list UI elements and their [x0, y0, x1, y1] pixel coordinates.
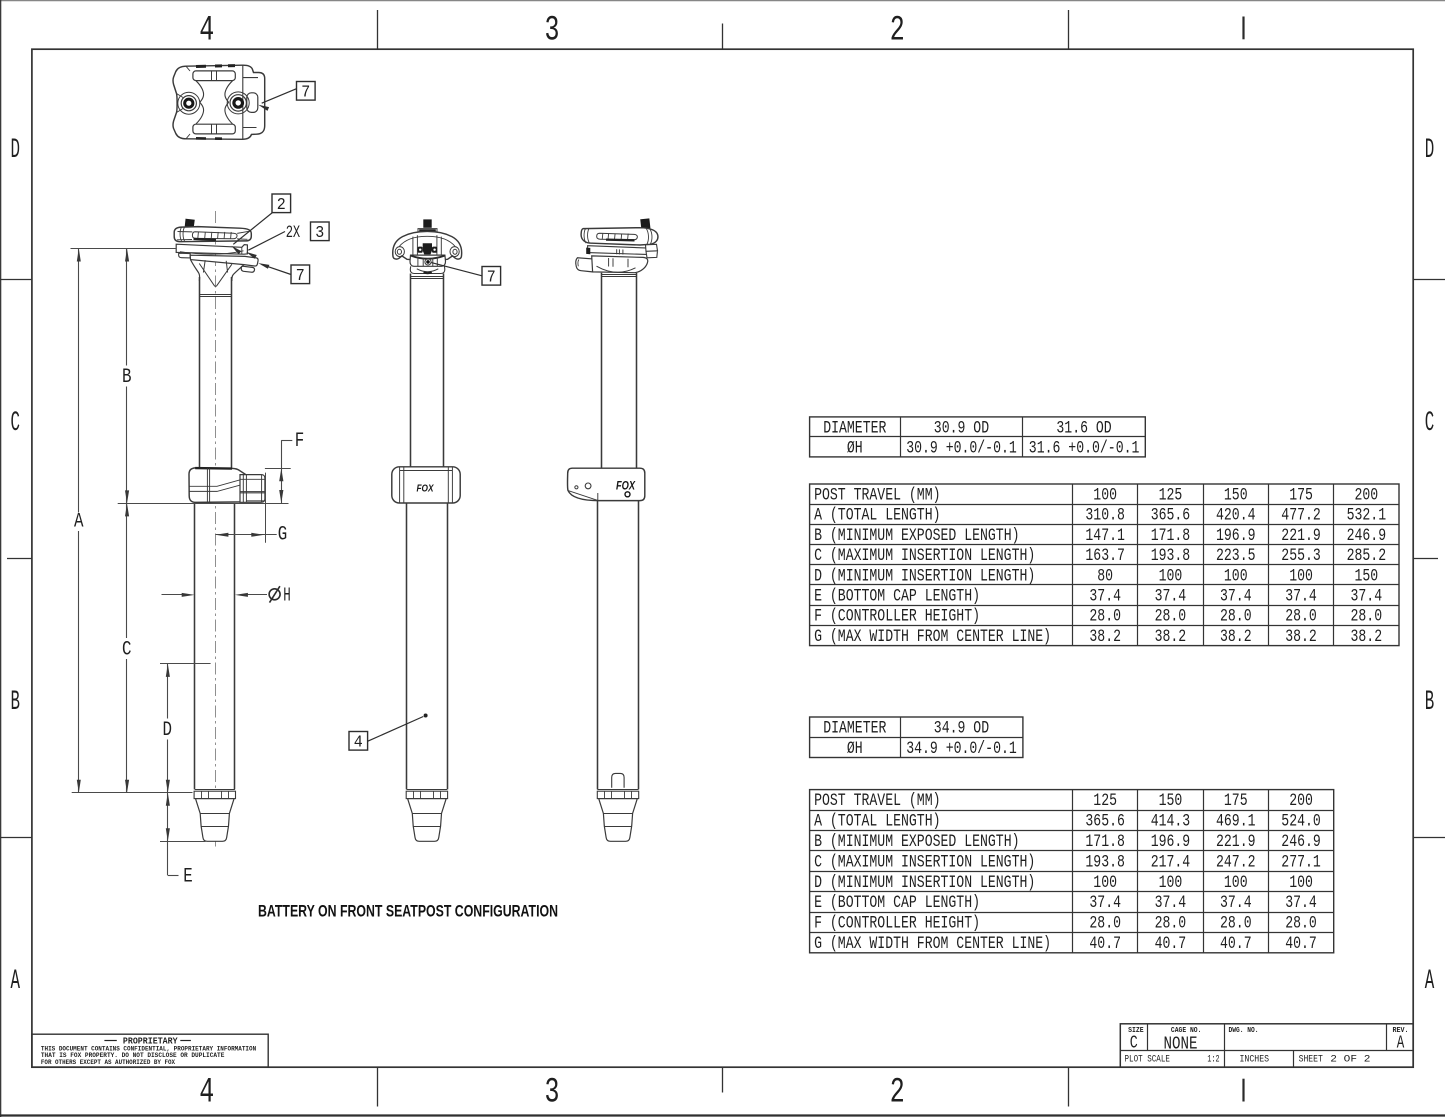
svg-text:B: B [10, 687, 20, 718]
svg-text:POST TRAVEL (MM): POST TRAVEL (MM) [814, 791, 940, 811]
svg-text:3: 3 [315, 224, 324, 243]
svg-text:D: D [10, 135, 20, 166]
svg-text:37.4: 37.4 [1220, 587, 1252, 607]
svg-text:246.9: 246.9 [1347, 526, 1387, 546]
svg-text:38.2: 38.2 [1220, 627, 1252, 647]
svg-text:2: 2 [890, 10, 905, 50]
svg-text:37.4: 37.4 [1351, 587, 1383, 607]
svg-text:34.9 OD: 34.9 OD [934, 719, 989, 739]
svg-text:A: A [1397, 1033, 1405, 1053]
svg-text:4: 4 [199, 1073, 214, 1113]
svg-text:80: 80 [1097, 566, 1113, 586]
svg-text:A: A [74, 511, 84, 534]
svg-text:524.0: 524.0 [1281, 812, 1321, 832]
svg-text:DIAMETER: DIAMETER [823, 418, 887, 438]
svg-text:150: 150 [1224, 486, 1248, 506]
svg-text:221.9: 221.9 [1281, 526, 1321, 546]
svg-text:37.4: 37.4 [1220, 893, 1252, 913]
svg-text:DWG. NO.: DWG. NO. [1229, 1027, 1259, 1035]
svg-text:277.1: 277.1 [1281, 852, 1321, 872]
svg-text:F (CONTROLLER HEIGHT): F (CONTROLLER HEIGHT) [814, 914, 980, 934]
svg-text:E (BOTTOM CAP LENGTH): E (BOTTOM CAP LENGTH) [814, 893, 980, 913]
svg-text:163.7: 163.7 [1085, 546, 1125, 566]
svg-text:37.4: 37.4 [1155, 893, 1187, 913]
svg-text:G (MAX WIDTH FROM CENTER LINE): G (MAX WIDTH FROM CENTER LINE) [814, 934, 1051, 954]
svg-text:193.8: 193.8 [1151, 546, 1191, 566]
svg-text:A: A [10, 966, 20, 997]
svg-text:38.2: 38.2 [1351, 627, 1383, 647]
svg-text:1:2: 1:2 [1207, 1054, 1219, 1065]
svg-text:FOX: FOX [417, 483, 435, 495]
svg-text:38.2: 38.2 [1285, 627, 1317, 647]
svg-text:C (MAXIMUM INSERTION LENGTH): C (MAXIMUM INSERTION LENGTH) [814, 546, 1035, 566]
svg-text:31.6 OD: 31.6 OD [1056, 418, 1111, 438]
svg-text:28.0: 28.0 [1155, 914, 1187, 934]
svg-text:30.9 +0.0/-0.1: 30.9 +0.0/-0.1 [906, 438, 1017, 458]
svg-text:147.1: 147.1 [1085, 526, 1125, 546]
svg-text:C: C [10, 408, 20, 439]
svg-text:477.2: 477.2 [1281, 506, 1321, 526]
svg-text:7: 7 [301, 83, 310, 102]
svg-text:A: A [1425, 966, 1435, 997]
svg-text:28.0: 28.0 [1155, 607, 1187, 627]
svg-text:7: 7 [296, 267, 305, 286]
svg-text:D (MINIMUM INSERTION LENGTH): D (MINIMUM INSERTION LENGTH) [814, 873, 1035, 893]
svg-text:365.6: 365.6 [1085, 812, 1125, 832]
svg-text:E (BOTTOM CAP LENGTH): E (BOTTOM CAP LENGTH) [814, 587, 980, 607]
svg-text:37.4: 37.4 [1089, 587, 1121, 607]
svg-text:4: 4 [199, 10, 214, 50]
svg-text:200: 200 [1289, 791, 1313, 811]
svg-text:40.7: 40.7 [1285, 934, 1317, 954]
svg-text:C (MAXIMUM INSERTION LENGTH): C (MAXIMUM INSERTION LENGTH) [814, 852, 1035, 872]
svg-text:255.3: 255.3 [1281, 546, 1321, 566]
svg-text:C: C [122, 638, 132, 661]
svg-text:ØH: ØH [847, 438, 863, 458]
svg-text:B: B [122, 366, 132, 389]
svg-text:40.7: 40.7 [1220, 934, 1252, 954]
svg-text:247.2: 247.2 [1216, 852, 1256, 872]
svg-text:150: 150 [1159, 791, 1183, 811]
svg-text:4: 4 [354, 733, 363, 752]
svg-text:INCHES: INCHES [1240, 1054, 1270, 1065]
svg-text:196.9: 196.9 [1151, 832, 1191, 852]
svg-text:171.8: 171.8 [1151, 526, 1191, 546]
svg-text:G: G [278, 524, 288, 547]
svg-text:3: 3 [545, 1073, 560, 1113]
svg-text:469.1: 469.1 [1216, 812, 1256, 832]
svg-text:310.8: 310.8 [1085, 506, 1125, 526]
svg-text:171.8: 171.8 [1085, 832, 1125, 852]
svg-text:34.9 +0.0/-0.1: 34.9 +0.0/-0.1 [906, 739, 1017, 759]
svg-text:28.0: 28.0 [1351, 607, 1383, 627]
svg-text:37.4: 37.4 [1285, 587, 1317, 607]
svg-text:D: D [1425, 135, 1435, 166]
svg-text:223.5: 223.5 [1216, 546, 1256, 566]
svg-text:BATTERY ON FRONT SEATPOST CONF: BATTERY ON FRONT SEATPOST CONFIGURATION [258, 902, 558, 921]
svg-text:FOR OTHERS EXCEPT AS AUTHORIZE: FOR OTHERS EXCEPT AS AUTHORIZED BY FOX [41, 1059, 175, 1066]
svg-text:365.6: 365.6 [1151, 506, 1191, 526]
svg-text:246.9: 246.9 [1281, 832, 1321, 852]
svg-text:SHEET: SHEET [1299, 1054, 1323, 1065]
svg-text:7: 7 [487, 268, 496, 287]
svg-text:31.6 +0.0/-0.1: 31.6 +0.0/-0.1 [1029, 438, 1140, 458]
svg-text:150: 150 [1355, 566, 1379, 586]
svg-text:100: 100 [1289, 873, 1313, 893]
svg-text:175: 175 [1289, 486, 1313, 506]
svg-text:200: 200 [1355, 486, 1379, 506]
svg-text:100: 100 [1159, 566, 1183, 586]
svg-text:100: 100 [1224, 566, 1248, 586]
svg-text:NONE: NONE [1164, 1035, 1198, 1055]
svg-text:H: H [283, 585, 291, 607]
svg-text:100: 100 [1093, 873, 1117, 893]
svg-text:3: 3 [545, 10, 560, 50]
svg-text:B: B [1425, 687, 1435, 718]
svg-text:175: 175 [1224, 791, 1248, 811]
svg-text:E: E [183, 865, 193, 888]
svg-text:F: F [295, 430, 305, 453]
svg-text:2: 2 [890, 1073, 905, 1113]
svg-text:37.4: 37.4 [1155, 587, 1187, 607]
svg-text:28.0: 28.0 [1220, 914, 1252, 934]
svg-text:100: 100 [1224, 873, 1248, 893]
svg-text:2: 2 [277, 196, 286, 215]
svg-text:196.9: 196.9 [1216, 526, 1256, 546]
svg-text:A (TOTAL LENGTH): A (TOTAL LENGTH) [814, 812, 940, 832]
svg-text:30.9 OD: 30.9 OD [934, 418, 989, 438]
svg-text:28.0: 28.0 [1089, 914, 1121, 934]
svg-text:28.0: 28.0 [1089, 607, 1121, 627]
svg-text:D: D [162, 719, 172, 742]
svg-text:FOX: FOX [616, 481, 636, 493]
svg-text:B (MINIMUM EXPOSED LENGTH): B (MINIMUM EXPOSED LENGTH) [814, 526, 1019, 546]
svg-text:2X: 2X [286, 223, 301, 243]
svg-text:A (TOTAL LENGTH): A (TOTAL LENGTH) [814, 506, 940, 526]
svg-text:285.2: 285.2 [1347, 546, 1387, 566]
svg-text:B (MINIMUM EXPOSED LENGTH): B (MINIMUM EXPOSED LENGTH) [814, 832, 1019, 852]
svg-text:100: 100 [1289, 566, 1313, 586]
svg-text:125: 125 [1159, 486, 1183, 506]
svg-text:414.3: 414.3 [1151, 812, 1191, 832]
svg-text:C: C [1425, 408, 1435, 439]
svg-text:420.4: 420.4 [1216, 506, 1256, 526]
svg-text:193.8: 193.8 [1085, 852, 1125, 872]
svg-text:F (CONTROLLER HEIGHT): F (CONTROLLER HEIGHT) [814, 607, 980, 627]
svg-text:37.4: 37.4 [1089, 893, 1121, 913]
svg-text:D (MINIMUM INSERTION LENGTH): D (MINIMUM INSERTION LENGTH) [814, 566, 1035, 586]
svg-text:38.2: 38.2 [1155, 627, 1187, 647]
svg-text:28.0: 28.0 [1285, 914, 1317, 934]
svg-text:C: C [1130, 1033, 1138, 1053]
svg-text:ØH: ØH [847, 739, 863, 759]
svg-text:40.7: 40.7 [1155, 934, 1187, 954]
svg-text:DIAMETER: DIAMETER [823, 719, 887, 739]
svg-text:POST TRAVEL (MM): POST TRAVEL (MM) [814, 486, 940, 506]
svg-text:28.0: 28.0 [1220, 607, 1252, 627]
svg-text:217.4: 217.4 [1151, 852, 1191, 872]
svg-text:100: 100 [1159, 873, 1183, 893]
svg-text:28.0: 28.0 [1285, 607, 1317, 627]
svg-text:532.1: 532.1 [1347, 506, 1387, 526]
svg-text:PLOT SCALE: PLOT SCALE [1125, 1054, 1170, 1065]
svg-text:2 OF 2: 2 OF 2 [1330, 1054, 1370, 1065]
svg-text:40.7: 40.7 [1089, 934, 1121, 954]
svg-text:37.4: 37.4 [1285, 893, 1317, 913]
svg-text:100: 100 [1093, 486, 1117, 506]
svg-text:G (MAX WIDTH FROM CENTER LINE): G (MAX WIDTH FROM CENTER LINE) [814, 627, 1051, 647]
svg-text:221.9: 221.9 [1216, 832, 1256, 852]
svg-text:38.2: 38.2 [1089, 627, 1121, 647]
svg-text:125: 125 [1093, 791, 1117, 811]
